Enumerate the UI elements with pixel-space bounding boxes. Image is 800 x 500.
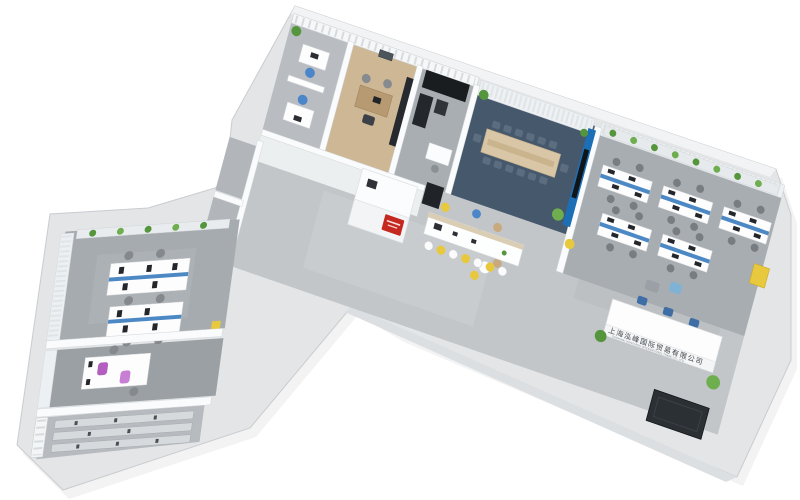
monitor <box>152 323 158 330</box>
rack-box <box>74 421 78 425</box>
monitor <box>172 263 178 270</box>
rack-box <box>76 444 80 448</box>
monitor <box>152 281 158 288</box>
rack-box <box>116 442 120 446</box>
rack-box <box>88 432 92 436</box>
monitor <box>122 325 128 332</box>
monitor <box>116 310 122 317</box>
rack-box <box>114 418 118 422</box>
monitor <box>122 283 128 290</box>
floorplan-page: 上海泓峰国际贸易有限公司 SHANGHAI HONGFENG INTERNATI… <box>0 0 800 500</box>
rack-box <box>127 429 131 433</box>
rack-box <box>155 439 159 443</box>
monitor <box>146 265 152 272</box>
monitor <box>118 267 124 274</box>
desk <box>81 353 151 389</box>
floorplan-render: 上海泓峰国际贸易有限公司 SHANGHAI HONGFENG INTERNATI… <box>0 0 800 500</box>
rack-box <box>154 415 158 419</box>
monitor <box>144 308 150 315</box>
